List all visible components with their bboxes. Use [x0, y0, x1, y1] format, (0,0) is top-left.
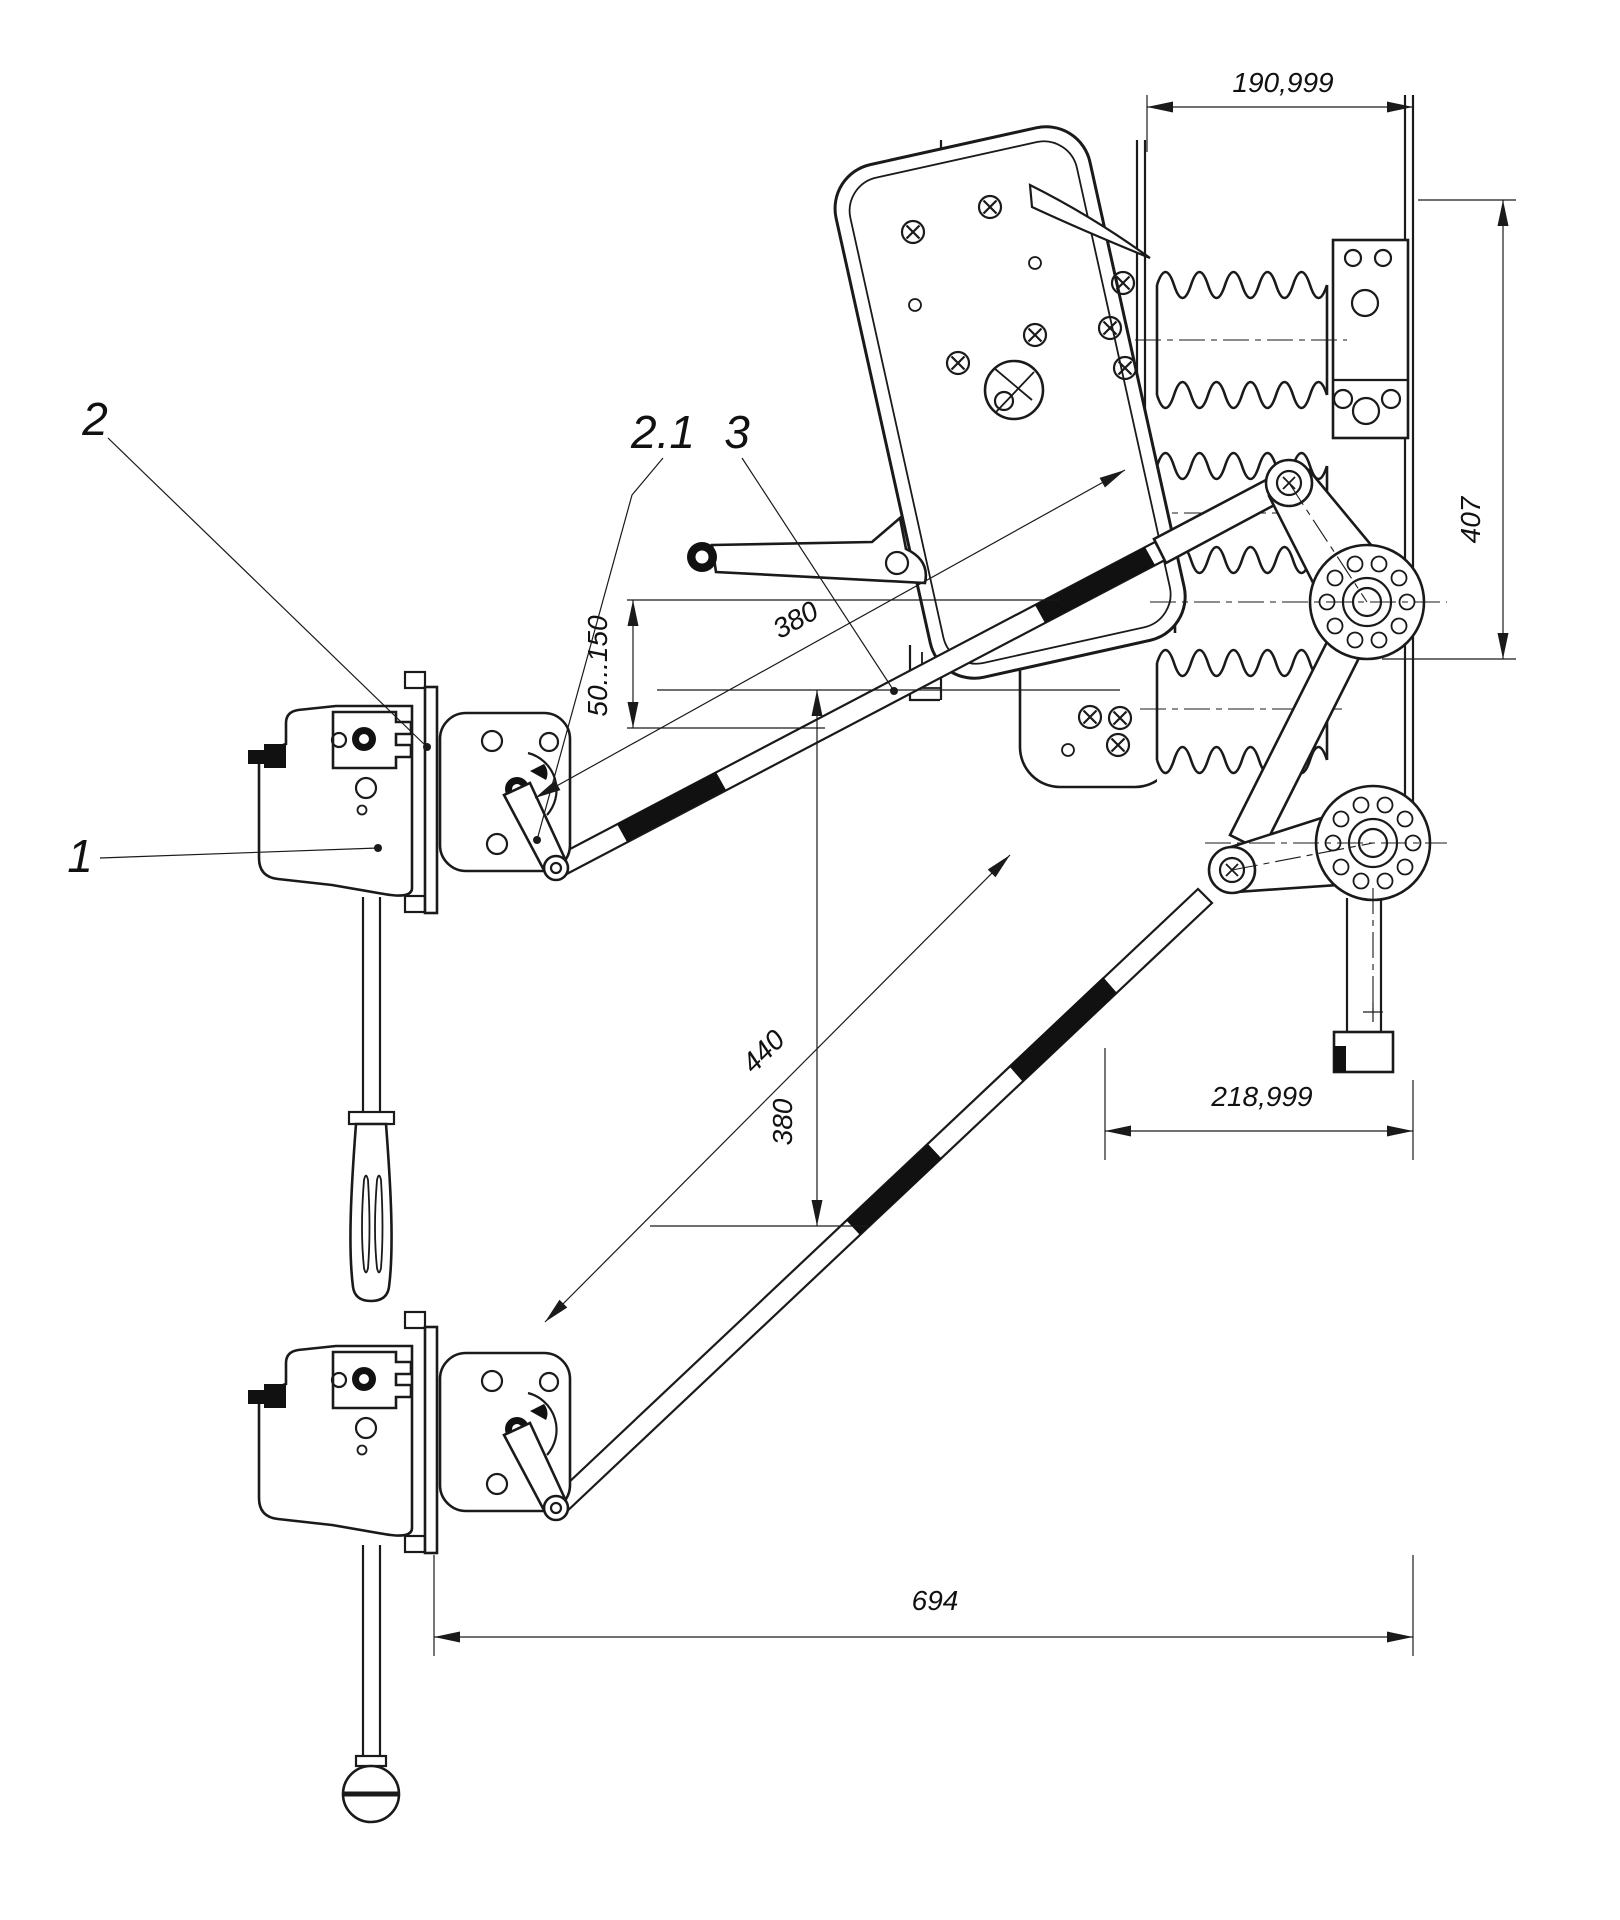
- dim-label-top-width: 190,999: [1232, 67, 1333, 98]
- face-plate: [826, 118, 1193, 700]
- callout-label-2: 2: [81, 393, 108, 445]
- dim-label-upper-rod: 380: [767, 595, 823, 645]
- main-switch-assembly: [687, 118, 1347, 790]
- operating-handle: [349, 897, 394, 1301]
- dimension-overall-width: 694: [434, 1555, 1413, 1656]
- shaft-hub: [985, 361, 1043, 419]
- rod-adjuster: [1009, 977, 1117, 1082]
- dim-label-mid-width: 218,999: [1210, 1081, 1312, 1112]
- dimension-top-width: 190,999: [1147, 67, 1413, 152]
- dim-label-lower-diagonal: 440: [736, 1024, 791, 1079]
- dimension-lower-diagonal: 440: [541, 851, 1014, 1326]
- lower-rod: [549, 889, 1212, 1515]
- callout-label-1: 1: [67, 830, 93, 882]
- dim-label-stroke-range: 50...150: [582, 615, 613, 717]
- callout-label-2-1: 2.1: [630, 406, 695, 458]
- drive-mechanism-lower: [248, 1312, 570, 1822]
- rod-adjuster: [846, 1144, 942, 1235]
- callout-label-3: 3: [724, 406, 750, 458]
- upper-mounting-bracket: [1333, 240, 1408, 438]
- ball-handle-rod: [343, 1545, 399, 1822]
- handle-grip: [350, 1124, 391, 1301]
- support-post: [1334, 898, 1393, 1072]
- dim-label-overall-width: 694: [912, 1585, 959, 1616]
- dim-label-right-height: 407: [1455, 495, 1486, 543]
- release-lever: [687, 518, 926, 583]
- drawing-canvas: 190,999 407 50...150 380: [0, 0, 1620, 1920]
- drive-mechanism-upper: [248, 672, 570, 1301]
- rod-adjuster: [617, 772, 726, 842]
- dim-label-lower-vertical: 380: [767, 1098, 798, 1145]
- insulator-1: [1135, 255, 1347, 425]
- callout-2: 2: [81, 393, 431, 751]
